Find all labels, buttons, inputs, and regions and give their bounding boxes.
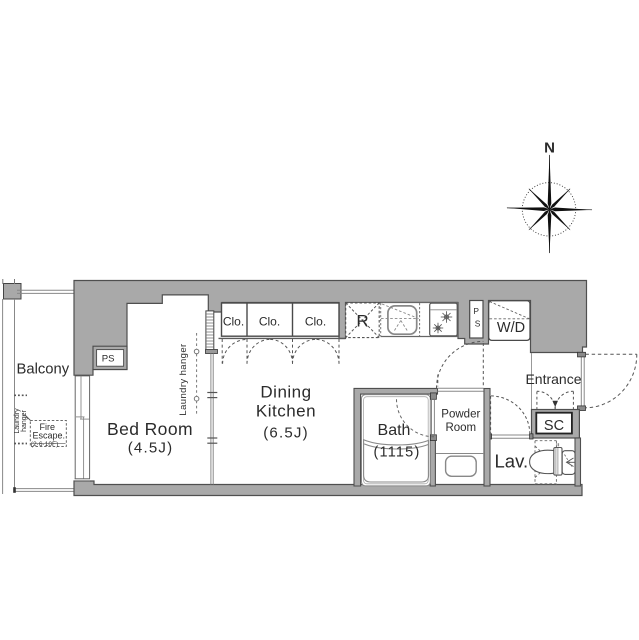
svg-text:Powder: Powder [441, 408, 480, 420]
svg-text:N: N [544, 140, 555, 157]
svg-text:Clo.: Clo. [223, 314, 244, 328]
svg-text:(6.5J): (6.5J) [263, 425, 309, 442]
svg-text:Room: Room [445, 422, 476, 434]
svg-text:SC: SC [544, 418, 564, 434]
svg-text:W/D: W/D [497, 320, 525, 336]
svg-text:Laundry hanger: Laundry hanger [178, 343, 189, 415]
svg-text:(2·6·10F): (2·6·10F) [31, 441, 58, 448]
svg-text:PS: PS [102, 353, 115, 364]
svg-text:R: R [356, 311, 368, 330]
svg-text:Bed Room: Bed Room [107, 419, 193, 439]
svg-text:Kitchen: Kitchen [256, 402, 316, 421]
svg-text:Laundry: Laundry [14, 408, 21, 434]
svg-text:Clo.: Clo. [305, 314, 326, 328]
svg-text:hanger: hanger [21, 409, 28, 431]
svg-text:Escape.: Escape. [33, 431, 66, 441]
svg-text:(4.5J): (4.5J) [128, 440, 174, 457]
svg-text:S: S [475, 318, 481, 328]
svg-text:(1115): (1115) [374, 445, 421, 461]
svg-text:Lav.: Lav. [495, 451, 529, 472]
svg-text:P: P [473, 306, 479, 316]
svg-text:Dining: Dining [260, 383, 311, 402]
svg-text:Clo.: Clo. [259, 314, 280, 328]
svg-text:Balcony: Balcony [17, 362, 70, 378]
svg-text:Entrance: Entrance [525, 371, 581, 387]
svg-text:Bath: Bath [378, 422, 411, 439]
